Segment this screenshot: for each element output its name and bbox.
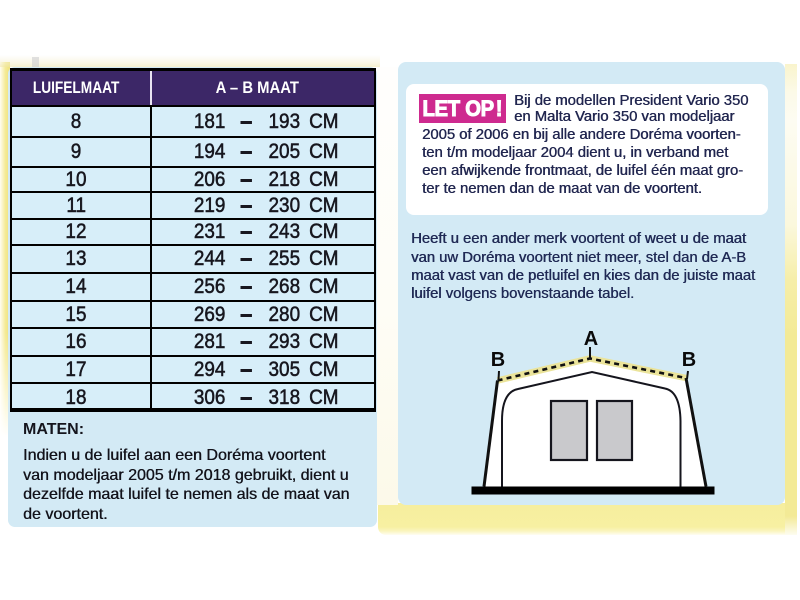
svg-text:B: B bbox=[682, 349, 696, 371]
svg-text:A: A bbox=[584, 328, 598, 350]
svg-text:B: B bbox=[491, 349, 505, 371]
